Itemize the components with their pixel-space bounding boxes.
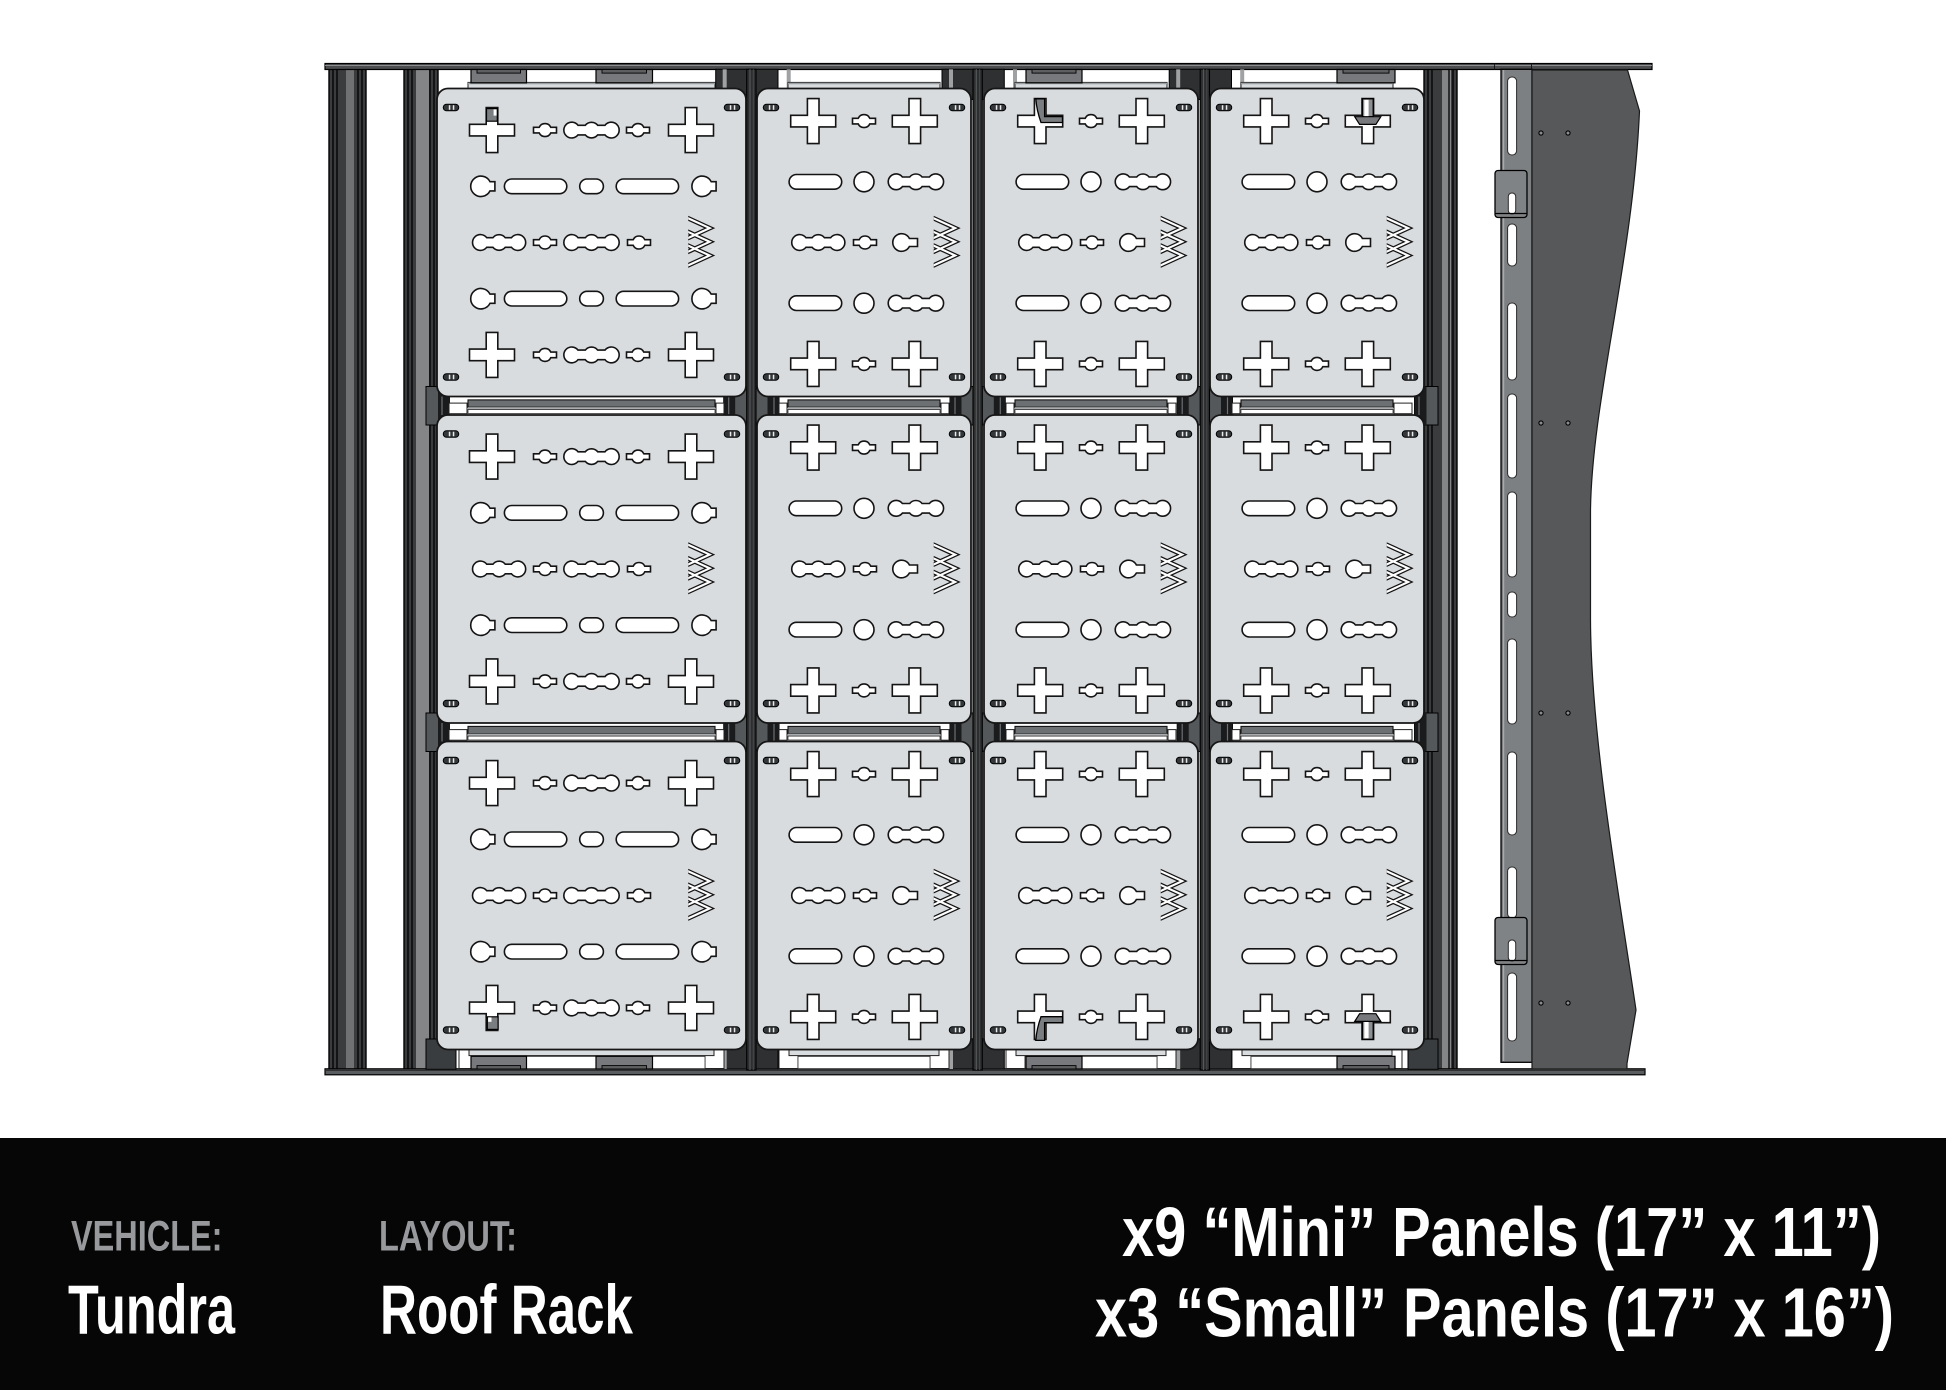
svg-text:x3 “Small” Panels (17” x 16”): x3 “Small” Panels (17” x 16”) (1095, 1274, 1894, 1352)
svg-text:LAYOUT:: LAYOUT: (379, 1213, 517, 1261)
svg-text:VEHICLE:: VEHICLE: (71, 1213, 223, 1261)
svg-text:x9 “Mini” Panels (17” x 11”): x9 “Mini” Panels (17” x 11”) (1122, 1193, 1881, 1271)
svg-text:Roof Rack: Roof Rack (380, 1271, 633, 1349)
svg-text:Tundra: Tundra (68, 1271, 236, 1349)
